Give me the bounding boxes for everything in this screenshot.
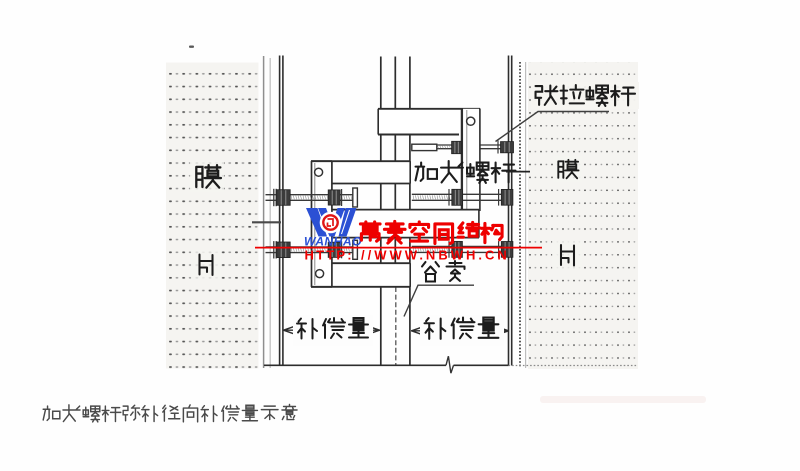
svg-text:WANHAO: WANHAO [304, 235, 362, 249]
svg-text:HTTP:: HTTP: [305, 248, 354, 263]
svg-text://WWW.NBWH.CN: //WWW.NBWH.CN [361, 248, 510, 263]
